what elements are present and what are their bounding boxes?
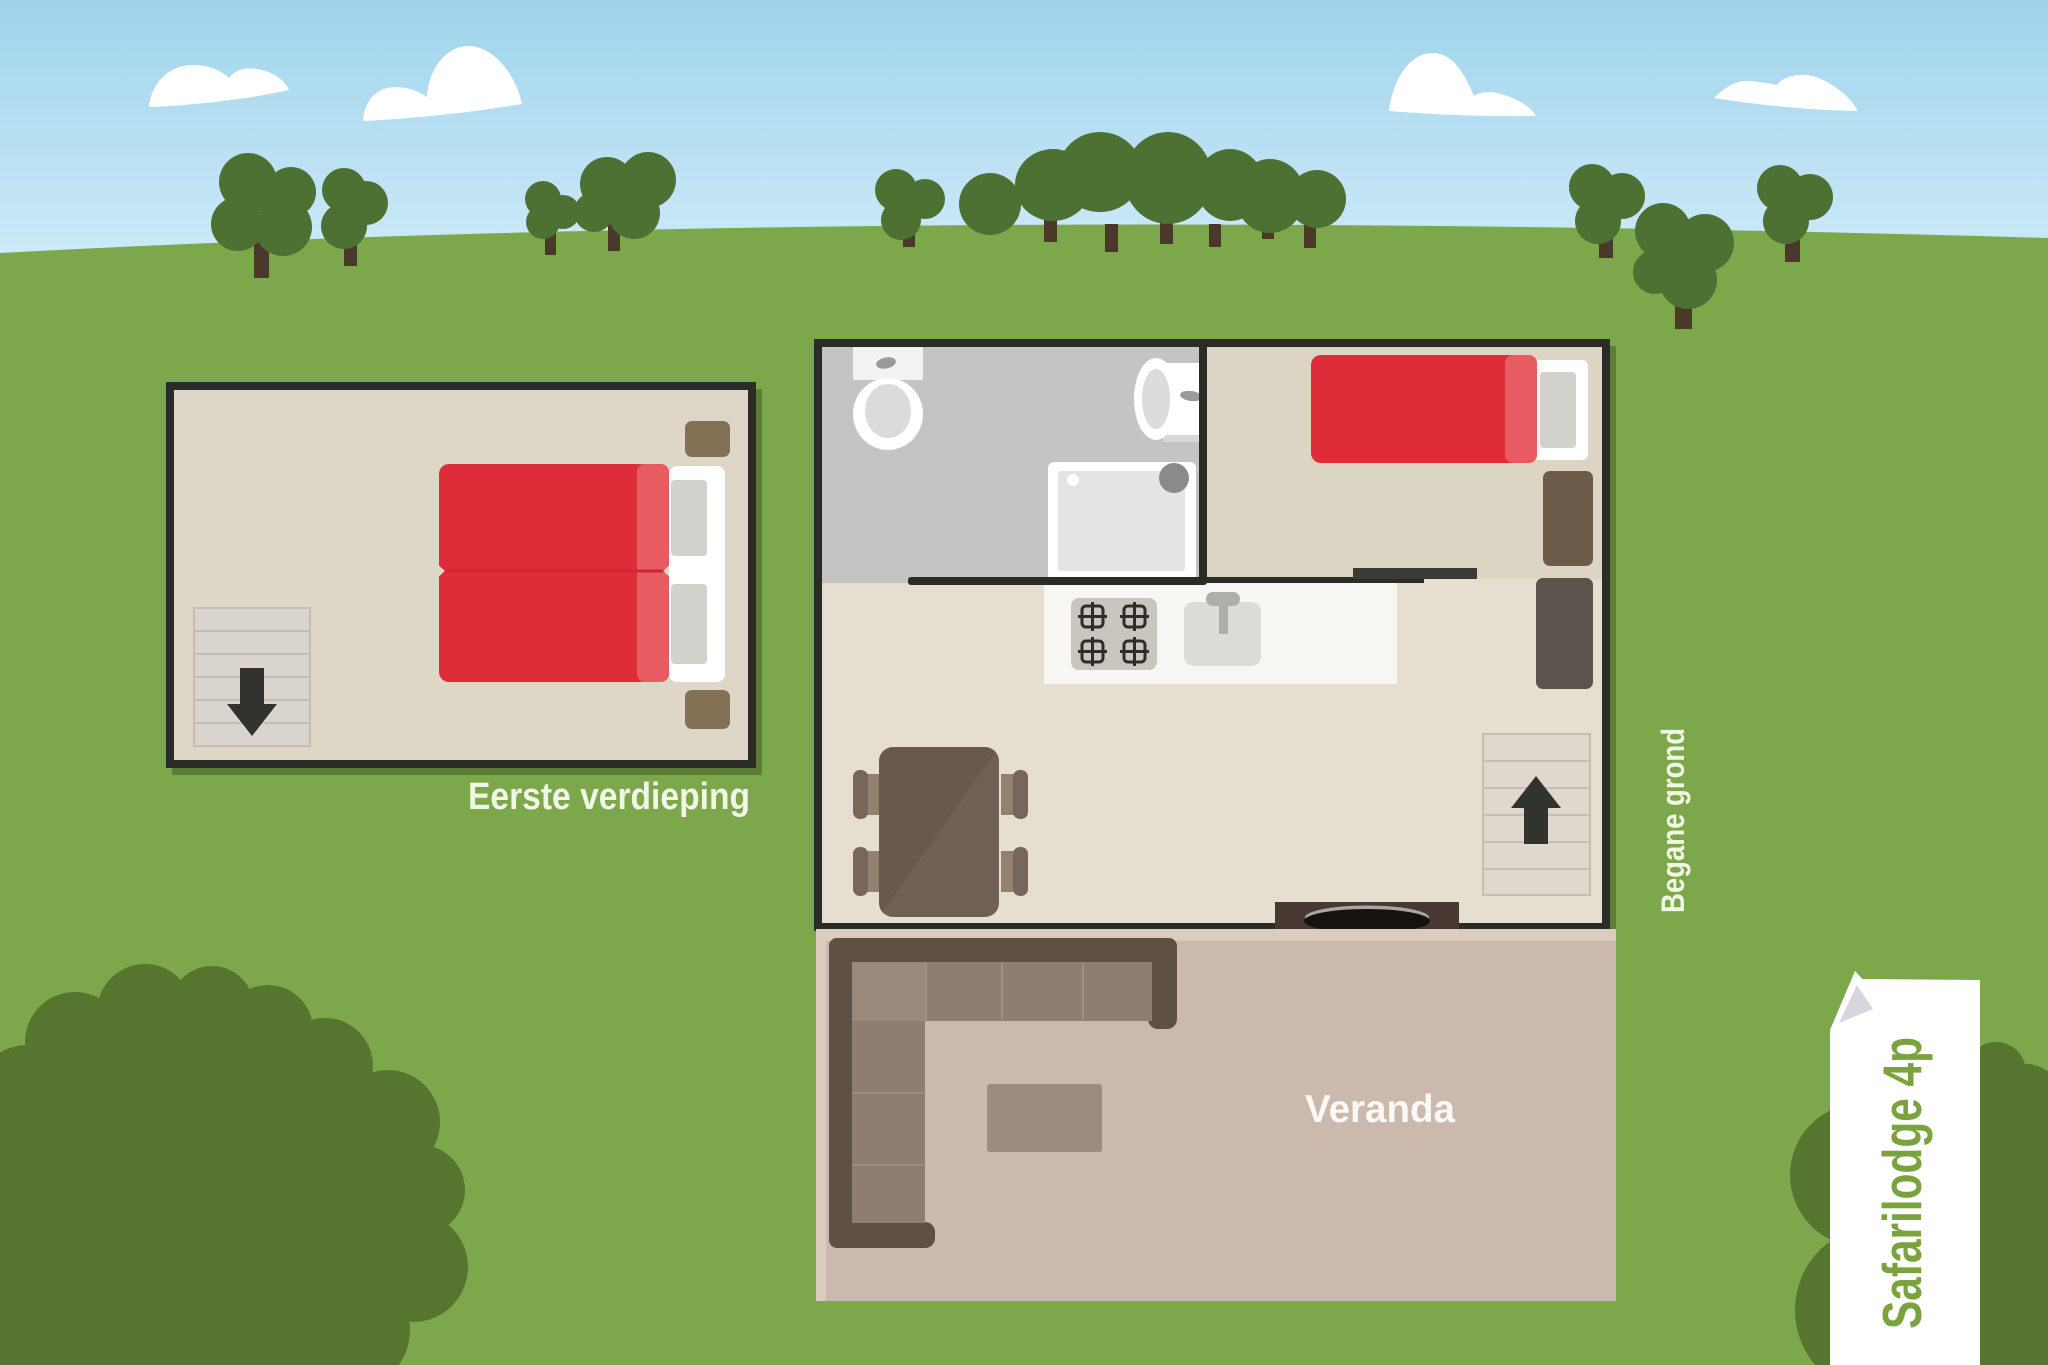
svg-text:Veranda: Veranda: [1305, 1088, 1455, 1131]
svg-text:Begane grond: Begane grond: [1655, 728, 1691, 913]
svg-text:Eerste verdieping: Eerste verdieping: [468, 776, 750, 818]
svg-text:Safarilodge 4p: Safarilodge 4p: [1871, 1037, 1933, 1329]
